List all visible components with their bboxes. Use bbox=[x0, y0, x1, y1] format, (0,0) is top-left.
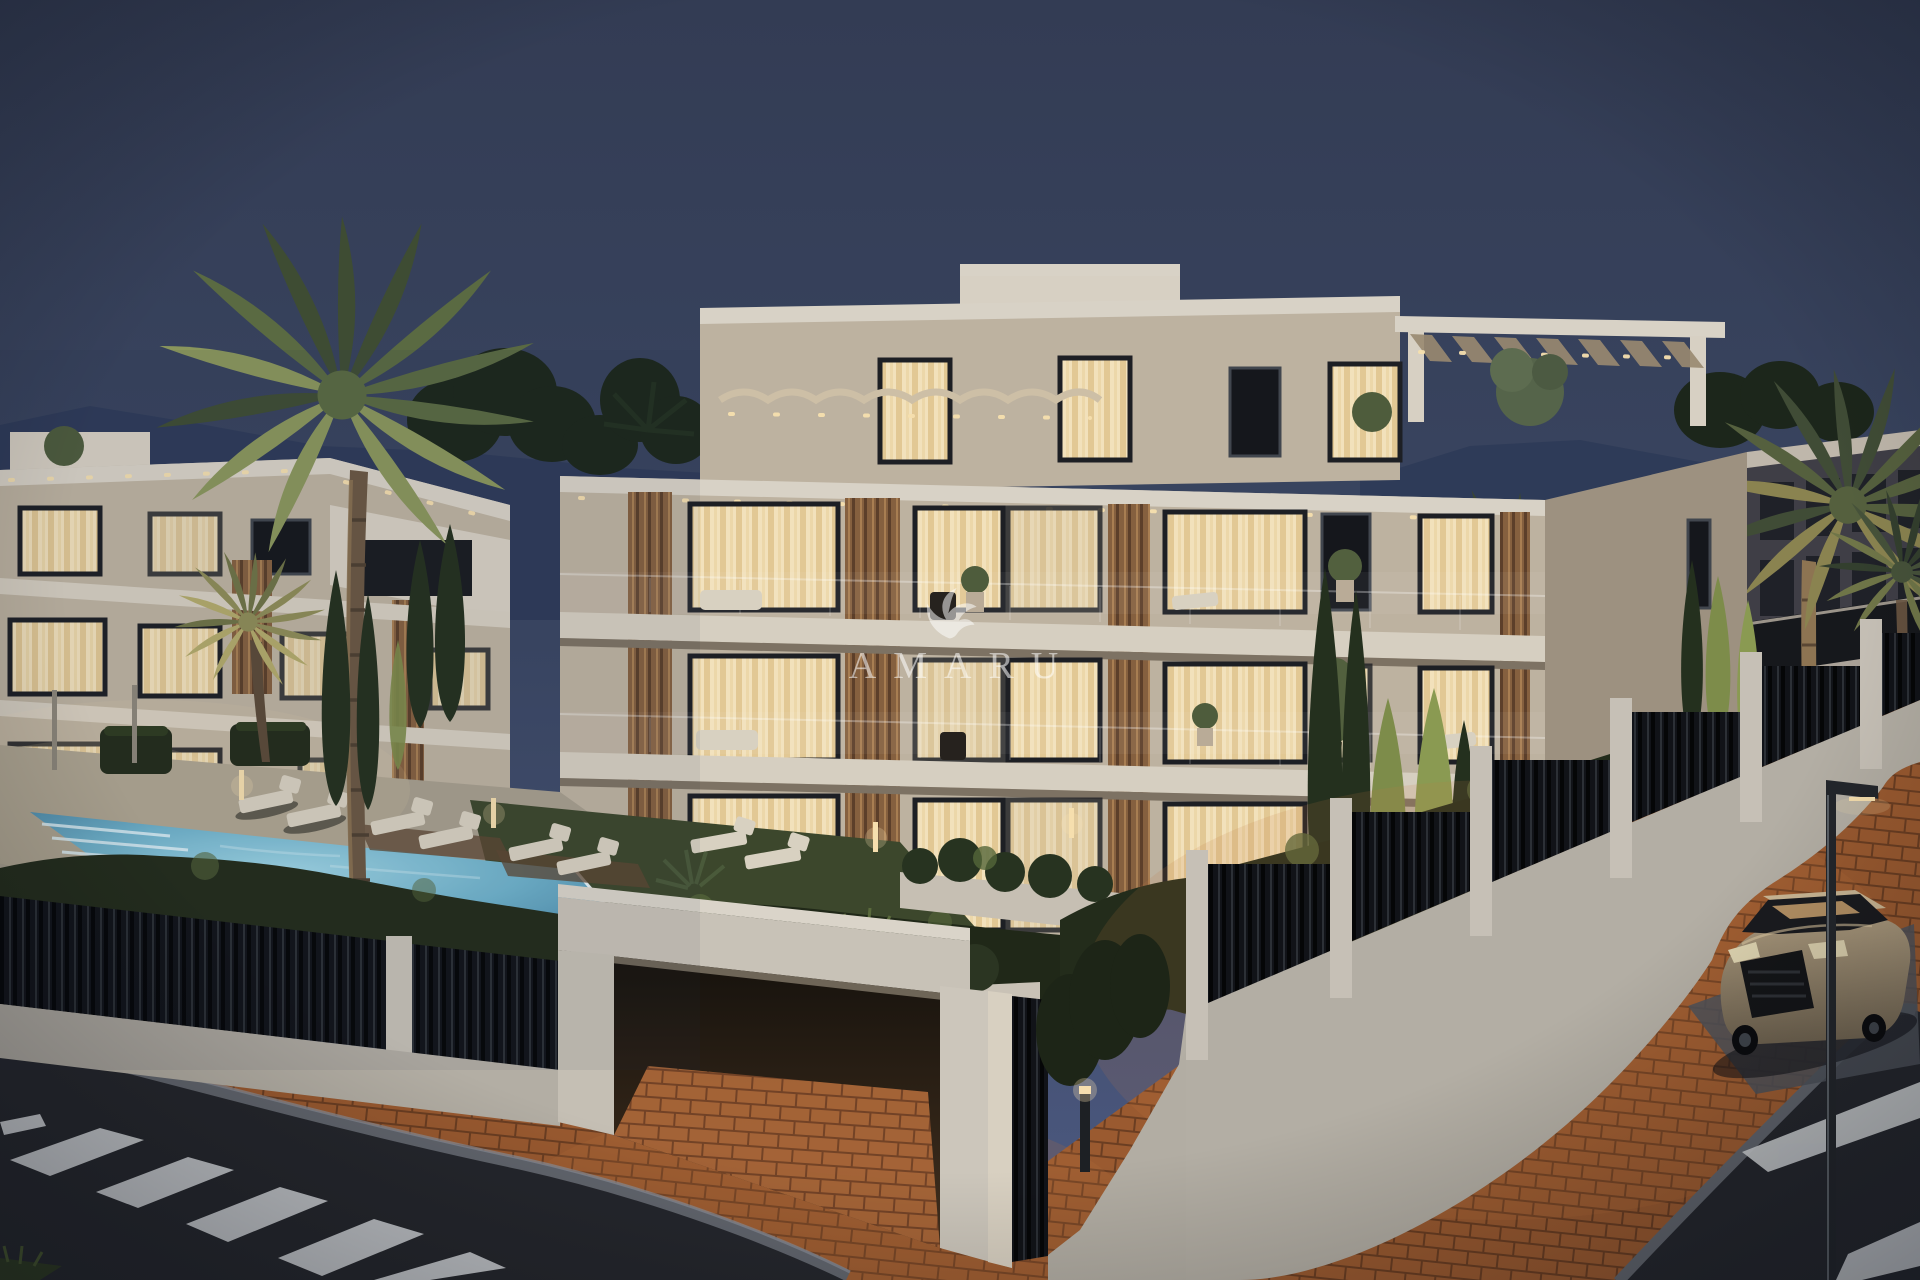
atmosphere-overlays bbox=[0, 0, 1920, 1280]
watermark-text: AMARU bbox=[849, 645, 1075, 687]
scene-canvas: AMARU bbox=[0, 0, 1920, 1280]
dusk-render: AMARU bbox=[0, 0, 1920, 1280]
